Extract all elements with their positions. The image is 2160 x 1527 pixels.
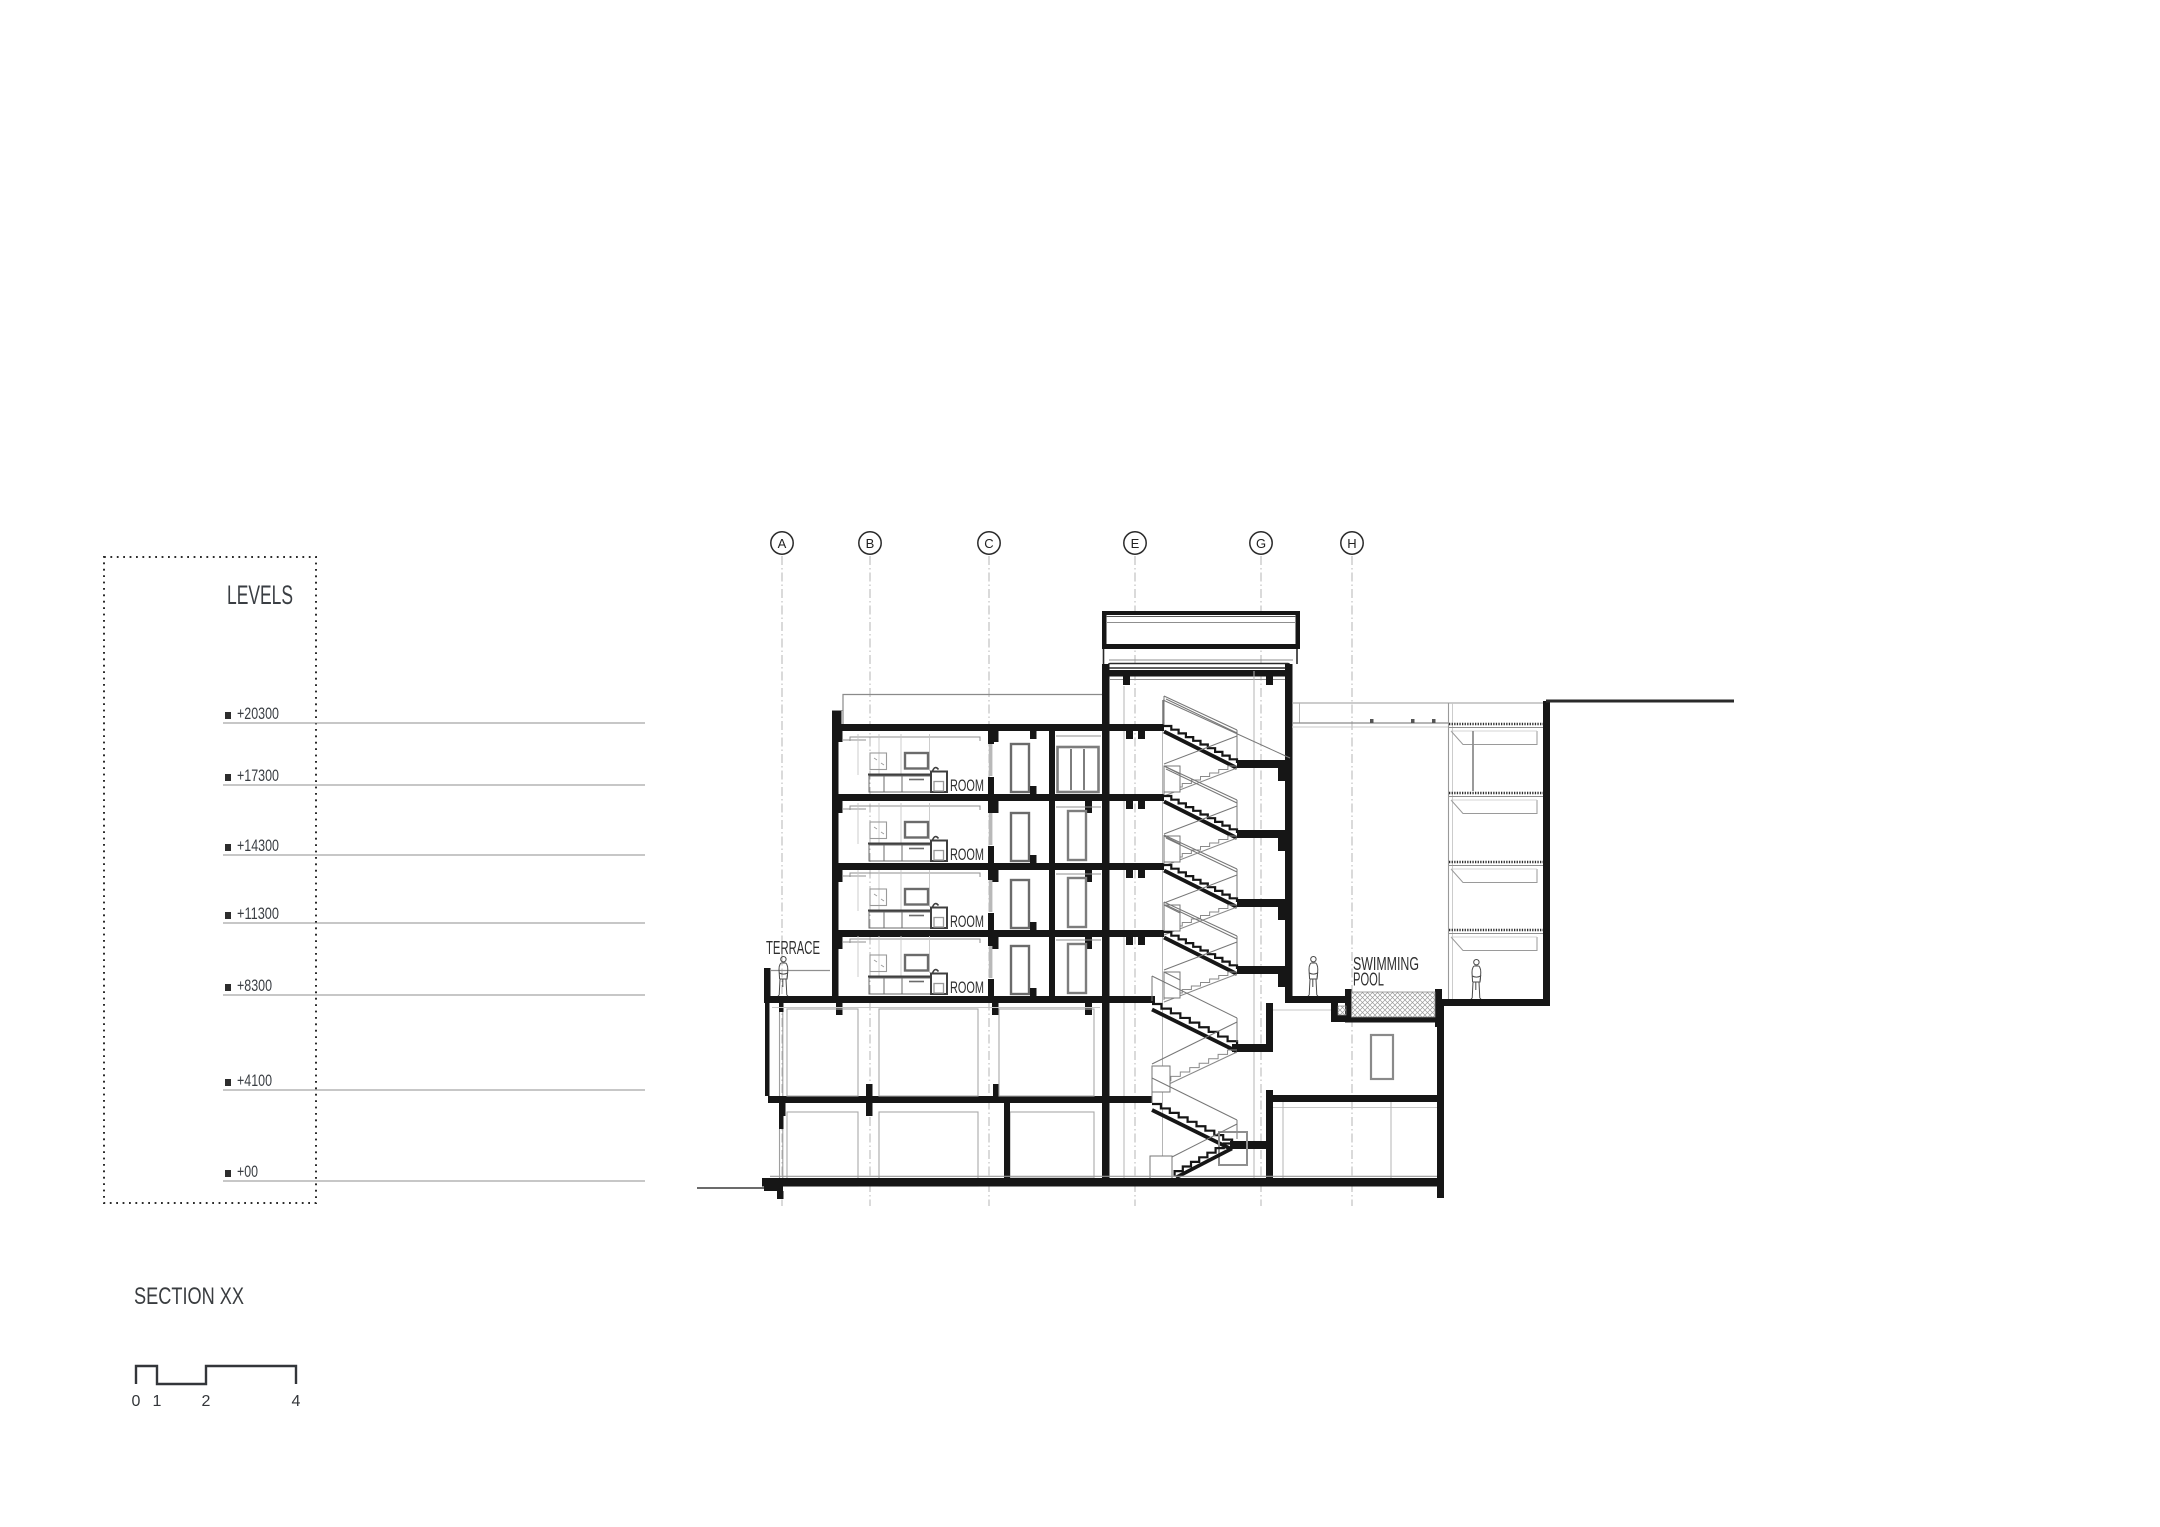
svg-text:+14300: +14300 (237, 837, 279, 855)
svg-text:ROOM: ROOM (950, 913, 984, 931)
svg-text:2: 2 (202, 1393, 211, 1410)
svg-text:ROOM: ROOM (950, 846, 984, 864)
svg-text:LEVELS: LEVELS (227, 580, 293, 610)
svg-text:ROOM: ROOM (950, 979, 984, 997)
svg-text:G: G (1256, 536, 1266, 551)
svg-text:4: 4 (292, 1393, 301, 1410)
svg-text:+11300: +11300 (237, 905, 279, 923)
svg-text:+00: +00 (237, 1163, 258, 1181)
svg-text:+17300: +17300 (237, 767, 279, 785)
svg-text:POOL: POOL (1353, 970, 1384, 990)
svg-text:ROOM: ROOM (950, 777, 984, 795)
svg-text:SECTION XX: SECTION XX (134, 1283, 244, 1310)
svg-text:1: 1 (153, 1393, 162, 1410)
svg-text:+4100: +4100 (237, 1072, 272, 1090)
svg-text:0: 0 (132, 1393, 141, 1410)
svg-text:C: C (984, 536, 993, 551)
svg-text:E: E (1131, 536, 1140, 551)
svg-text:+8300: +8300 (237, 977, 272, 995)
svg-text:A: A (778, 536, 787, 551)
svg-text:+20300: +20300 (237, 705, 279, 723)
svg-text:TERRACE: TERRACE (766, 938, 820, 958)
svg-text:H: H (1347, 536, 1356, 551)
svg-text:B: B (866, 536, 875, 551)
